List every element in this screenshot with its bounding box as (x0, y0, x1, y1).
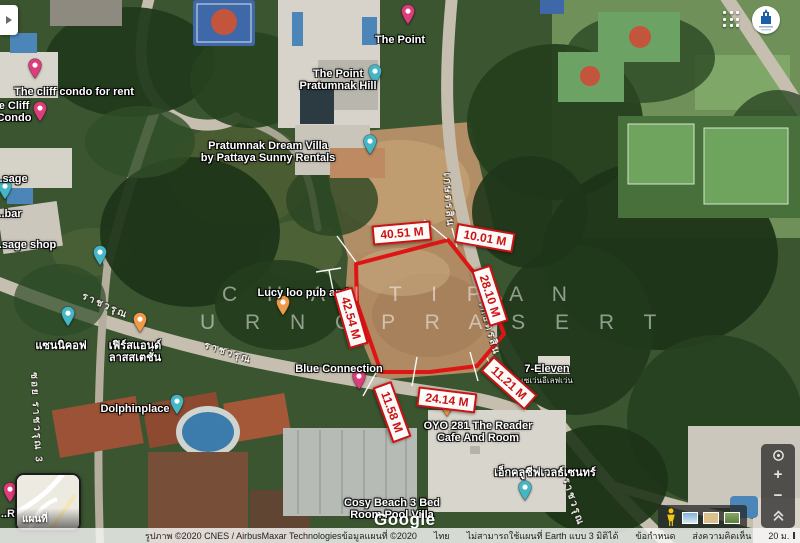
map-type-toggle[interactable]: แผนที่ (15, 473, 81, 532)
map-viewport[interactable]: C H A I T I P A N U R N G P R A S E R T … (0, 0, 800, 543)
imagery-thumbnail-green[interactable] (724, 512, 740, 524)
place-pin-icon[interactable] (352, 369, 367, 395)
imagery-thumbnail-sky[interactable] (682, 512, 698, 524)
region-label: ไทย (434, 529, 450, 543)
zoom-out-button[interactable]: − (761, 489, 795, 503)
apps-grid-icon[interactable] (723, 11, 740, 28)
place-pin-icon[interactable] (61, 306, 76, 332)
imagery-thumbnail-field[interactable] (703, 512, 719, 524)
terms-link[interactable]: ข้อกำหนด (635, 529, 675, 543)
place-pin-icon[interactable] (518, 480, 533, 506)
account-avatar[interactable] (752, 6, 780, 34)
collapse-chevrons-icon[interactable] (772, 509, 785, 523)
place-pin-icon[interactable] (170, 394, 185, 420)
google-logo: Google (374, 510, 436, 530)
street-view-tray (658, 505, 747, 530)
place-pin-icon[interactable] (276, 295, 291, 321)
place-pin-icon[interactable] (93, 245, 108, 271)
attribution-bar: รูปภาพ ©2020 CNES / AirbusMaxar Technolo… (0, 528, 800, 543)
pegman-icon[interactable] (665, 508, 677, 527)
scale-label: 20 ม. (768, 529, 789, 543)
earth-mode-notice: ไม่สามารถใช้แผนที่ Earth แบบ 3 มิติได้ (467, 529, 619, 543)
map-type-label: แผนที่ (22, 512, 48, 527)
place-pin-icon[interactable] (0, 179, 13, 205)
place-pin-icon[interactable] (363, 134, 378, 160)
satellite-imagery (0, 0, 800, 543)
expand-panel-button[interactable] (0, 5, 18, 35)
scale-bar (793, 532, 795, 539)
my-location-icon[interactable] (772, 449, 785, 462)
feedback-link[interactable]: ส่งความคิดเห็น (692, 529, 751, 543)
place-pin-icon[interactable] (133, 312, 148, 338)
map-controls: + − (761, 444, 795, 528)
place-pin-icon[interactable] (28, 58, 43, 84)
place-pin-icon[interactable] (33, 101, 48, 127)
imagery-credit: รูปภาพ ©2020 CNES / AirbusMaxar Technolo… (145, 529, 417, 543)
zoom-in-button[interactable]: + (761, 468, 795, 482)
place-pin-icon[interactable] (368, 64, 383, 90)
company-logo-icon (752, 6, 780, 34)
place-pin-icon[interactable] (401, 4, 416, 30)
